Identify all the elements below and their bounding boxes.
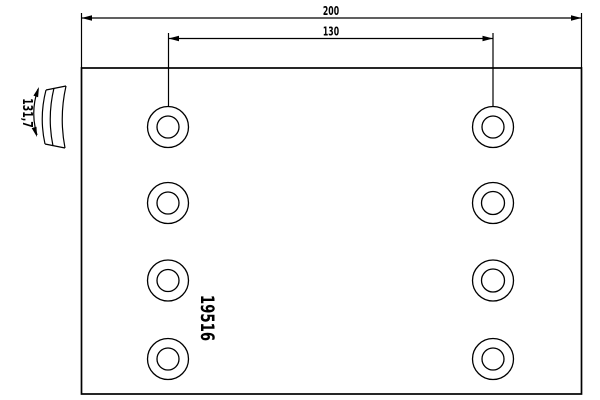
arc-arrowhead-top-icon bbox=[33, 87, 39, 97]
rivet-hole-row1-right bbox=[473, 107, 514, 148]
arrowhead-right-icon bbox=[571, 15, 582, 20]
dim-label-130: 130 bbox=[323, 25, 339, 39]
profile-end-cap-top bbox=[46, 86, 66, 90]
profile-arc-middle bbox=[50, 88, 54, 146]
arrowhead-right-icon bbox=[483, 36, 494, 41]
arc-dimension: 131,7 bbox=[20, 87, 39, 137]
dimension-hole-spacing: 130 bbox=[169, 25, 494, 106]
lining-side-profile bbox=[42, 86, 66, 148]
arc-width-label: 131,7 bbox=[20, 98, 36, 128]
brake-lining-drawing: 200 130 bbox=[0, 0, 600, 400]
profile-end-cap-bottom bbox=[45, 144, 65, 148]
arrowhead-left-icon bbox=[169, 36, 180, 41]
rivet-hole-row4-right bbox=[473, 339, 514, 380]
profile-arc-inner bbox=[42, 90, 46, 144]
rivet-hole-row2-right bbox=[473, 183, 514, 224]
rivet-hole-row1-left bbox=[148, 107, 189, 148]
part-number-label: 19516 bbox=[196, 295, 218, 341]
arrowhead-left-icon bbox=[82, 15, 93, 20]
arc-arrowhead-bottom-icon bbox=[32, 127, 37, 137]
rivet-hole-row3-right bbox=[473, 260, 514, 301]
brake-lining-plate-outline bbox=[82, 68, 582, 394]
rivet-hole-row4-left bbox=[148, 339, 189, 380]
rivet-hole-row2-left bbox=[148, 183, 189, 224]
rivet-hole-row3-left bbox=[148, 260, 189, 301]
dim-label-200: 200 bbox=[323, 4, 339, 18]
drawing-canvas: 200 130 bbox=[0, 0, 600, 400]
profile-arc-outer bbox=[62, 86, 66, 148]
